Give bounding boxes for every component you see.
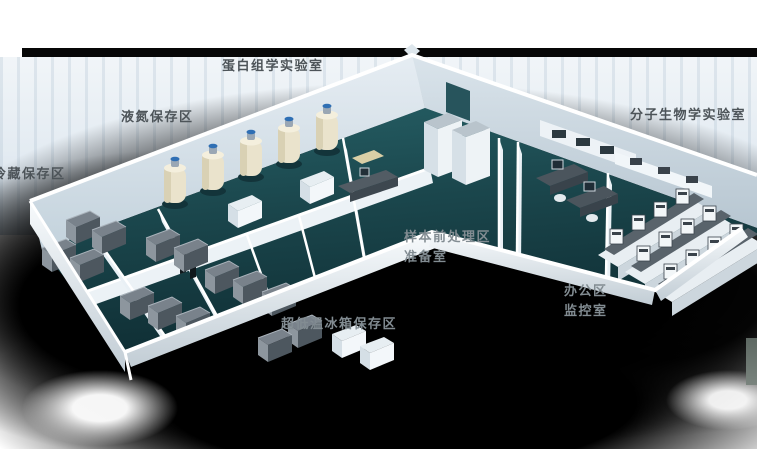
area-label-prep-room: 准备室 (404, 251, 448, 264)
area-label-cold-storage-zone: 冷藏保存区 (0, 168, 66, 181)
lab-3d-floorplan-image: 蛋白组学实验室液氮保存区冷藏保存区分子生物学实验室样本前处理区准备室办公区监控室… (0, 0, 757, 449)
area-label-liquid-nitrogen-zone: 液氮保存区 (121, 111, 194, 124)
area-label-monitor-room: 监控室 (564, 305, 608, 318)
area-label-molecular-biology-lab: 分子生物学实验室 (630, 109, 746, 122)
corner-room-cabinets (424, 113, 490, 185)
area-label-ult-freezer-zone: 超低温冰箱保存区 (281, 318, 397, 331)
area-label-sample-pretreat-zone: 样本前处理区 (404, 231, 491, 244)
building-render (0, 0, 757, 449)
area-label-office-zone: 办公区 (564, 285, 608, 298)
area-label-proteomics-lab: 蛋白组学实验室 (222, 60, 324, 73)
